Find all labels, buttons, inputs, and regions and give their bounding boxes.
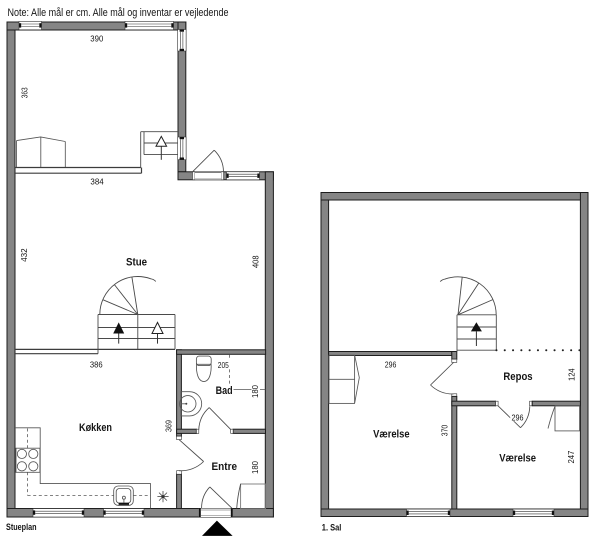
svg-text:390: 390 <box>90 34 104 43</box>
svg-text:Note: Alle mål er cm. Alle mål: Note: Alle mål er cm. Alle mål og invent… <box>8 7 229 19</box>
svg-text:Værelse: Værelse <box>499 453 536 465</box>
svg-text:363: 363 <box>21 87 30 98</box>
svg-text:205: 205 <box>218 361 229 370</box>
svg-text:432: 432 <box>20 248 29 262</box>
svg-text:296: 296 <box>385 361 397 370</box>
svg-text:384: 384 <box>90 177 104 186</box>
svg-text:1. Sal: 1. Sal <box>322 523 342 533</box>
svg-text:247: 247 <box>567 450 576 463</box>
svg-text:386: 386 <box>90 361 103 370</box>
svg-text:Repos: Repos <box>503 371 532 383</box>
svg-text:408: 408 <box>251 255 260 268</box>
svg-text:296: 296 <box>512 413 524 422</box>
svg-text:124: 124 <box>568 368 577 381</box>
svg-text:Værelse: Værelse <box>373 428 410 440</box>
svg-text:Køkken: Køkken <box>79 422 112 434</box>
svg-text:Bad: Bad <box>216 385 233 397</box>
svg-text:Stue: Stue <box>126 257 147 269</box>
svg-text:369: 369 <box>165 420 174 432</box>
svg-text:180: 180 <box>251 384 260 398</box>
svg-text:Entre: Entre <box>212 461 238 473</box>
svg-text:Stueplan: Stueplan <box>6 522 37 532</box>
svg-text:370: 370 <box>441 424 450 436</box>
svg-text:180: 180 <box>251 460 260 474</box>
